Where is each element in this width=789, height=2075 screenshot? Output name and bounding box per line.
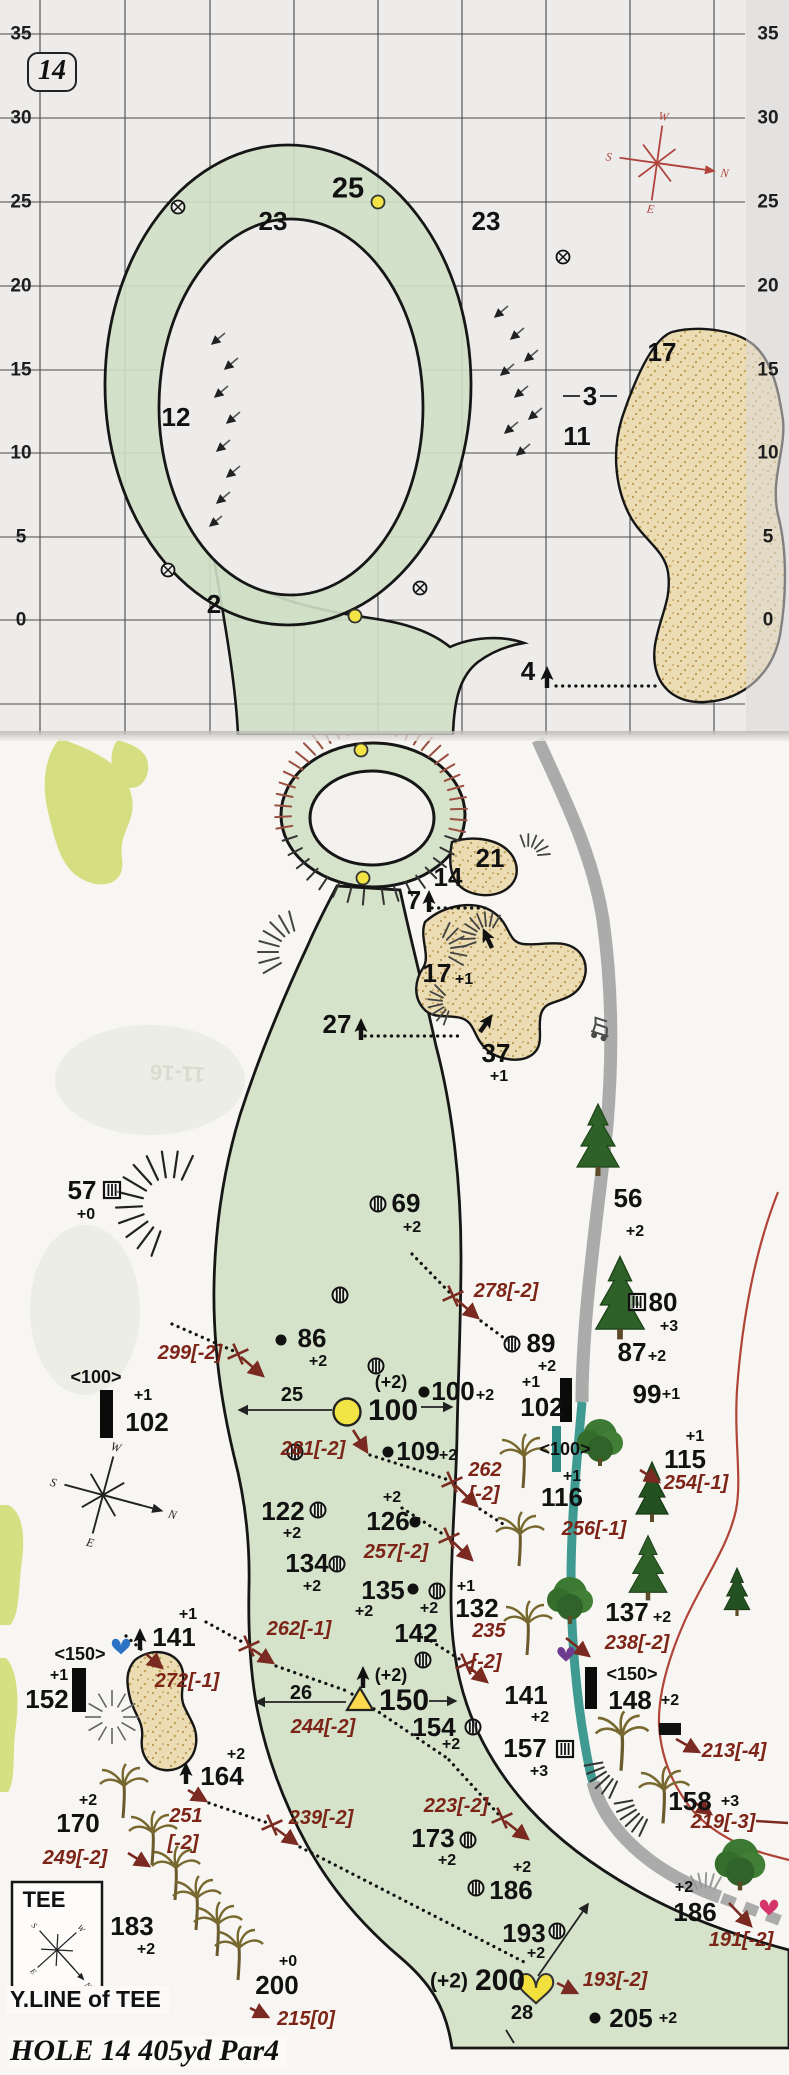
sprinkler-icon [288, 1445, 303, 1460]
hole-number-badge: 14 [27, 52, 77, 92]
page-fold [0, 731, 789, 741]
footer-yline: Y.LINE of TEE [6, 1986, 169, 2014]
dot-marker [408, 1584, 419, 1595]
yellow-dot-marker [372, 196, 385, 209]
dot-marker [419, 1387, 430, 1398]
yardage-book-page: WSNE WSNEW [0, 0, 789, 2075]
dot-marker [410, 1517, 421, 1528]
yellow-dot-marker [357, 872, 370, 885]
dot-marker [276, 1335, 287, 1346]
distance-post-icon [560, 1378, 572, 1422]
black-marker-icon [659, 1723, 681, 1735]
sprinkler-icon [416, 1653, 431, 1668]
100-yard-circle-marker [334, 1399, 361, 1426]
dot-marker [383, 1447, 394, 1458]
sprinkler-icon [330, 1557, 345, 1572]
sprinkler-icon [333, 1288, 348, 1303]
page-edge-shade [746, 0, 789, 735]
sprinkler-icon [371, 1197, 386, 1212]
sprinkler-icon [461, 1833, 476, 1848]
valve-box-icon [629, 1294, 645, 1310]
sprinkler-icon [505, 1337, 520, 1352]
yellow-dot-marker [355, 744, 368, 757]
dot-marker [590, 2013, 601, 2024]
distance-post-icon [72, 1668, 86, 1712]
sprinkler-x-icon [414, 582, 427, 595]
sprinkler-icon [369, 1359, 384, 1374]
ghost-bleed-text: 11-16 [149, 1061, 205, 1086]
distance-post-icon [100, 1390, 113, 1438]
green-detail-map: WSNE [0, 0, 789, 735]
sprinkler-icon [469, 1881, 484, 1896]
distance-post-icon [585, 1667, 597, 1709]
sprinkler-icon [430, 1584, 445, 1599]
green-inner [159, 219, 423, 595]
sprinkler-x-icon [172, 201, 185, 214]
footer-hole-title: HOLE 14 405yd Par4 [8, 2036, 287, 2068]
yellow-dot-marker [349, 610, 362, 623]
sprinkler-x-icon [557, 251, 570, 264]
valve-box-icon [104, 1182, 120, 1198]
sprinkler-icon [466, 1720, 481, 1735]
valve-box-icon [557, 1741, 573, 1757]
sprinkler-x-icon [162, 564, 175, 577]
putting-green-inner [310, 771, 434, 865]
teal-post-icon [552, 1426, 561, 1472]
sprinkler-icon [550, 1924, 565, 1939]
hole-layout-map: WSNEWSNE [0, 735, 789, 2075]
sprinkler-icon [311, 1503, 326, 1518]
